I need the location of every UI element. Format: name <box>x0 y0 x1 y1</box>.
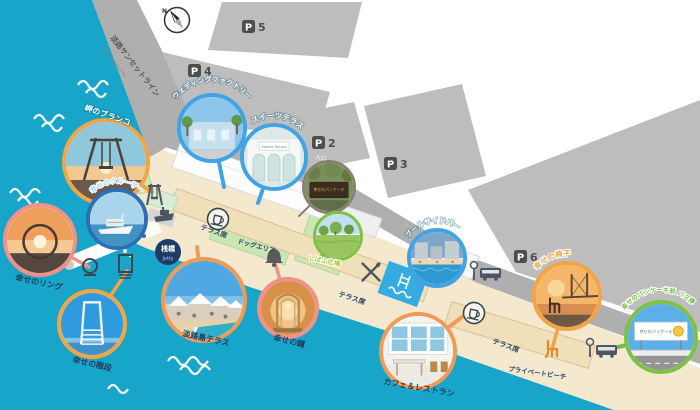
spot-bell[interactable] <box>257 277 319 339</box>
bus-stop-photo: 幸せのパンケーキ <box>628 304 694 370</box>
spot-bus-stop[interactable]: 幸せのパンケーキ <box>624 300 698 374</box>
sweets-sign-text: Sweets Terrace <box>261 145 286 149</box>
cafe-photo <box>383 316 453 386</box>
poolside-bar-photo <box>411 232 463 284</box>
wedding-factory-photo <box>181 97 243 159</box>
bell-photo <box>261 281 315 335</box>
sweets-terrace-photo: Sweets Terrace <box>244 127 304 187</box>
spot-stairs[interactable] <box>57 289 127 359</box>
spot-cruiser[interactable] <box>86 188 148 250</box>
spot-ring[interactable] <box>3 203 77 277</box>
pancake-sign-text: 幸せのパンケーキ <box>313 187 344 192</box>
spot-sweets-terrace[interactable]: Sweets Terrace <box>240 123 308 191</box>
pancake-sign-photo: 幸せのパンケーキ <box>305 163 353 211</box>
cruiser-photo <box>90 192 144 246</box>
stairs-photo <box>61 293 123 355</box>
parking-block-p5 <box>208 2 362 58</box>
spot-awaji-terrace[interactable] <box>161 257 247 343</box>
spot-lawn-plaza[interactable] <box>313 211 363 261</box>
chair-photo <box>536 265 598 327</box>
lawn-plaza-photo <box>316 214 360 258</box>
compass-icon <box>165 8 190 33</box>
spot-cafe[interactable] <box>379 312 457 390</box>
ring-photo <box>7 207 73 273</box>
spot-wedding-factory[interactable] <box>177 93 247 163</box>
spot-pancake-sign[interactable]: 幸せのパンケーキ <box>302 160 356 214</box>
spot-poolside-bar[interactable] <box>407 228 467 288</box>
spot-chair[interactable] <box>532 261 602 331</box>
billboard-text: 幸せのパンケーキ <box>640 328 673 334</box>
awaji-terrace-photo <box>165 261 243 339</box>
resort-map: Sweets Terrace 幸せのパンケーキ <box>0 0 700 410</box>
